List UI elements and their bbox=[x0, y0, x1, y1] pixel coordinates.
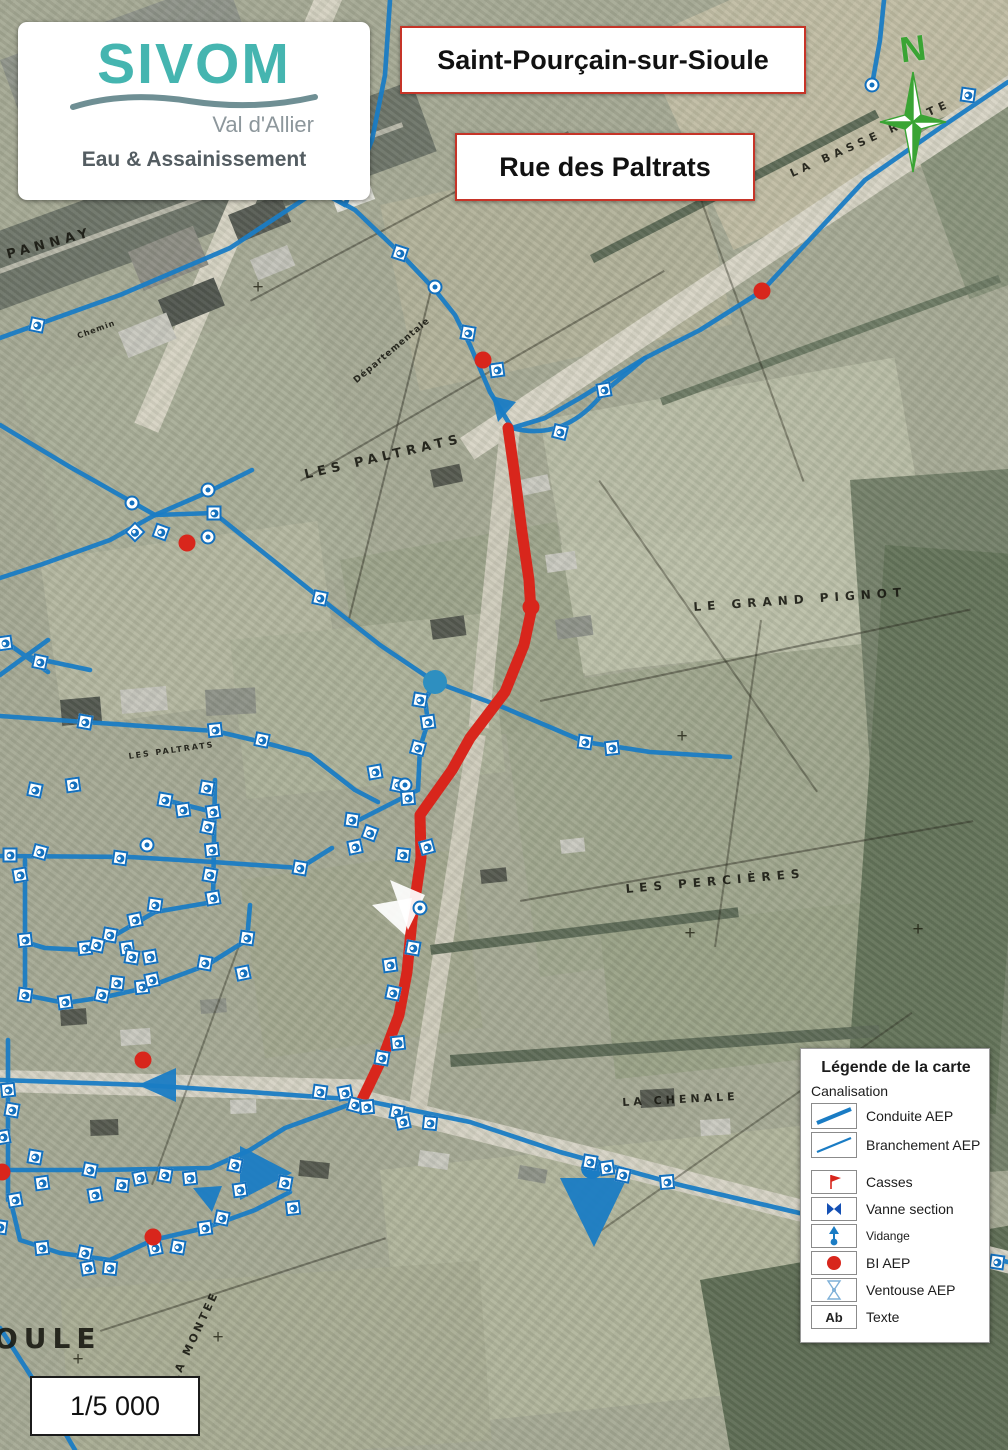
casses-flag-icon bbox=[811, 1170, 857, 1194]
ventouse-marker bbox=[413, 901, 428, 916]
place-label: PANNAY bbox=[5, 225, 94, 262]
map-legend: Légende de la carte Canalisation Conduit… bbox=[800, 1048, 990, 1343]
parcel-cross-mark: + bbox=[676, 726, 687, 748]
parcel-cross-mark: + bbox=[72, 1349, 83, 1371]
vanne-marker bbox=[169, 1238, 186, 1255]
vanne-marker bbox=[276, 1174, 293, 1191]
vanne-marker bbox=[0, 1128, 12, 1145]
compass-rose: N bbox=[868, 28, 958, 198]
vanne-marker bbox=[960, 87, 977, 104]
vanne-marker bbox=[581, 1153, 598, 1170]
ventouse-aep-hourglass-icon bbox=[811, 1278, 857, 1302]
vanne-marker bbox=[411, 691, 428, 708]
vanne-marker bbox=[213, 1209, 231, 1227]
vanne-marker bbox=[112, 850, 129, 867]
vanne-marker bbox=[226, 1156, 244, 1174]
logo-org-name: SIVOM bbox=[18, 36, 370, 93]
vanne-marker bbox=[131, 1169, 149, 1187]
bi-aep-marker bbox=[523, 599, 540, 616]
ventouse-marker bbox=[201, 483, 216, 498]
bi-aep-dot-icon bbox=[811, 1251, 857, 1275]
vanne-marker bbox=[291, 859, 308, 876]
vanne-marker bbox=[26, 1148, 43, 1165]
legend-item-ventouse-aep: Ventouse AEP bbox=[811, 1278, 981, 1302]
vanne-marker bbox=[124, 521, 145, 542]
vanne-marker bbox=[599, 1160, 616, 1177]
vanne-marker bbox=[34, 1175, 51, 1192]
vanne-marker bbox=[175, 802, 192, 819]
bi-aep-marker bbox=[754, 283, 771, 300]
vanne-marker bbox=[311, 589, 329, 607]
parcel-cross-mark: + bbox=[252, 277, 263, 299]
vanne-marker bbox=[17, 932, 33, 948]
parcel-cross-mark: + bbox=[212, 1327, 223, 1349]
ventouse-marker bbox=[201, 530, 216, 545]
vanne-marker bbox=[409, 739, 427, 757]
vanne-marker bbox=[384, 984, 402, 1002]
vanne-marker bbox=[391, 244, 410, 263]
vanne-marker bbox=[0, 1219, 8, 1236]
conduite-aep-line-icon bbox=[811, 1103, 857, 1129]
ventouse-marker bbox=[398, 778, 413, 793]
municipality-title: Saint-Pourçain-sur-Sioule bbox=[400, 26, 806, 94]
place-label: LE GRAND PIGNOT bbox=[693, 585, 908, 614]
vanne-marker bbox=[31, 843, 49, 861]
vanne-marker bbox=[312, 1084, 329, 1101]
parcel-cross-mark: + bbox=[912, 919, 923, 941]
vanne-marker bbox=[114, 1177, 130, 1193]
ventouse-marker bbox=[125, 496, 140, 511]
vanne-marker bbox=[366, 763, 383, 780]
texte-ab-icon: Ab bbox=[811, 1305, 857, 1329]
vanne-marker bbox=[182, 1170, 198, 1186]
place-label: Départementale bbox=[352, 316, 432, 386]
vanne-section-bowtie-icon bbox=[811, 1197, 857, 1221]
vanne-marker bbox=[253, 731, 271, 749]
place-label: LES PERCIÈRES bbox=[625, 866, 806, 896]
map-viewport: PANNAYLES PALTRATSLES PALTRATSLE GRAND P… bbox=[0, 0, 1008, 1450]
vanne-marker bbox=[11, 866, 28, 883]
vanne-marker bbox=[239, 930, 256, 947]
vanne-marker bbox=[420, 714, 437, 731]
place-label: LES PALTRATS bbox=[303, 432, 464, 483]
vanne-marker bbox=[198, 779, 215, 796]
place-label: OULE bbox=[0, 1322, 102, 1355]
vanne-marker bbox=[0, 1082, 16, 1098]
vanne-marker bbox=[344, 812, 361, 829]
vanne-marker bbox=[360, 823, 379, 842]
sivom-logo: SIVOM Val d'Allier Eau & Assainissement bbox=[18, 22, 370, 200]
vanne-marker bbox=[199, 818, 217, 836]
vanne-marker bbox=[147, 897, 164, 914]
vanne-marker bbox=[232, 1182, 249, 1199]
vanne-marker bbox=[390, 1035, 406, 1051]
vanne-marker bbox=[28, 316, 46, 334]
compass-north-label: N bbox=[898, 27, 929, 72]
ventouse-marker bbox=[140, 838, 155, 853]
vanne-marker bbox=[6, 1191, 23, 1208]
logo-department: Eau & Assainissement bbox=[18, 148, 370, 172]
vanne-marker bbox=[394, 1113, 412, 1131]
legend-item-bi-aep: BI AEP bbox=[811, 1251, 981, 1275]
vanne-marker bbox=[659, 1174, 675, 1190]
bi-aep-marker bbox=[0, 1164, 11, 1181]
vanne-marker bbox=[88, 936, 106, 954]
vanne-marker bbox=[57, 994, 74, 1011]
vanne-marker bbox=[489, 362, 506, 379]
vanne-marker bbox=[285, 1200, 301, 1216]
legend-item-vidange: Vidange bbox=[811, 1224, 981, 1248]
vanne-marker bbox=[577, 734, 594, 751]
vanne-marker bbox=[422, 1115, 438, 1131]
legend-item-casses: Casses bbox=[811, 1170, 981, 1194]
vanne-marker bbox=[196, 954, 213, 971]
vanne-marker bbox=[373, 1049, 390, 1066]
bi-aep-marker bbox=[145, 1229, 162, 1246]
vanne-marker bbox=[234, 964, 252, 982]
vanne-marker bbox=[395, 847, 411, 863]
vanne-marker bbox=[404, 939, 421, 956]
vanne-marker bbox=[614, 1166, 632, 1184]
legend-item-branchement-aep: Branchement AEP bbox=[811, 1132, 981, 1158]
vanne-marker bbox=[26, 781, 44, 799]
vanne-marker bbox=[207, 722, 223, 738]
parcel-cross-mark: + bbox=[684, 923, 695, 945]
vanne-marker bbox=[76, 713, 93, 730]
vanne-marker bbox=[143, 971, 161, 989]
bi-aep-marker bbox=[135, 1052, 152, 1069]
vanne-marker bbox=[34, 1240, 50, 1256]
vanne-marker bbox=[604, 740, 620, 756]
scale-box: 1/5 000 bbox=[30, 1376, 200, 1436]
vidange-marker bbox=[423, 670, 447, 694]
ventouse-marker bbox=[428, 280, 443, 295]
compass-star-icon bbox=[878, 70, 948, 174]
vanne-marker bbox=[31, 653, 49, 671]
vanne-marker bbox=[141, 948, 158, 965]
vanne-marker bbox=[3, 848, 18, 863]
vanne-marker bbox=[346, 838, 364, 856]
vanne-marker bbox=[65, 777, 82, 794]
vanne-marker bbox=[156, 791, 173, 808]
legend-section-canalisation: Canalisation bbox=[811, 1083, 981, 1099]
vanne-marker bbox=[382, 957, 399, 974]
vanne-marker bbox=[86, 1186, 103, 1203]
vanne-marker bbox=[102, 1260, 118, 1276]
vanne-marker bbox=[156, 1166, 173, 1183]
vanne-marker bbox=[81, 1161, 99, 1179]
bi-aep-marker bbox=[179, 535, 196, 552]
vanne-marker bbox=[204, 842, 220, 858]
vanne-marker bbox=[3, 1101, 20, 1118]
logo-wave-icon bbox=[18, 89, 370, 120]
vanne-marker bbox=[418, 838, 436, 856]
vanne-marker bbox=[109, 975, 125, 991]
legend-item-conduite-aep: Conduite AEP bbox=[811, 1103, 981, 1129]
vanne-marker bbox=[204, 889, 221, 906]
vanne-marker bbox=[151, 522, 170, 541]
vanne-marker bbox=[207, 506, 222, 521]
vanne-marker bbox=[123, 948, 140, 965]
place-label: LA CHENALE bbox=[622, 1090, 739, 1109]
legend-item-vanne-section: Vanne section bbox=[811, 1197, 981, 1221]
place-label: LES PALTRATS bbox=[128, 740, 215, 761]
vanne-marker bbox=[205, 804, 222, 821]
vanne-marker bbox=[201, 866, 218, 883]
vanne-marker bbox=[989, 1254, 1006, 1271]
bi-aep-marker bbox=[475, 352, 492, 369]
legend-title: Légende de la carte bbox=[811, 1059, 981, 1077]
vanne-marker bbox=[595, 381, 612, 398]
vanne-marker bbox=[551, 423, 569, 441]
vanne-marker bbox=[197, 1220, 214, 1237]
vanne-marker bbox=[459, 324, 476, 341]
branchement-aep-line-icon bbox=[811, 1132, 857, 1158]
place-label: Chemin bbox=[76, 318, 116, 340]
legend-item-texte: Ab Texte bbox=[811, 1305, 981, 1329]
vanne-marker bbox=[79, 1259, 96, 1276]
street-title: Rue des Paltrats bbox=[455, 133, 755, 201]
vanne-marker bbox=[126, 911, 144, 929]
vanne-marker bbox=[359, 1099, 375, 1115]
vanne-marker bbox=[17, 987, 34, 1004]
vidange-arrow-icon bbox=[811, 1224, 857, 1248]
vanne-marker bbox=[0, 635, 13, 652]
